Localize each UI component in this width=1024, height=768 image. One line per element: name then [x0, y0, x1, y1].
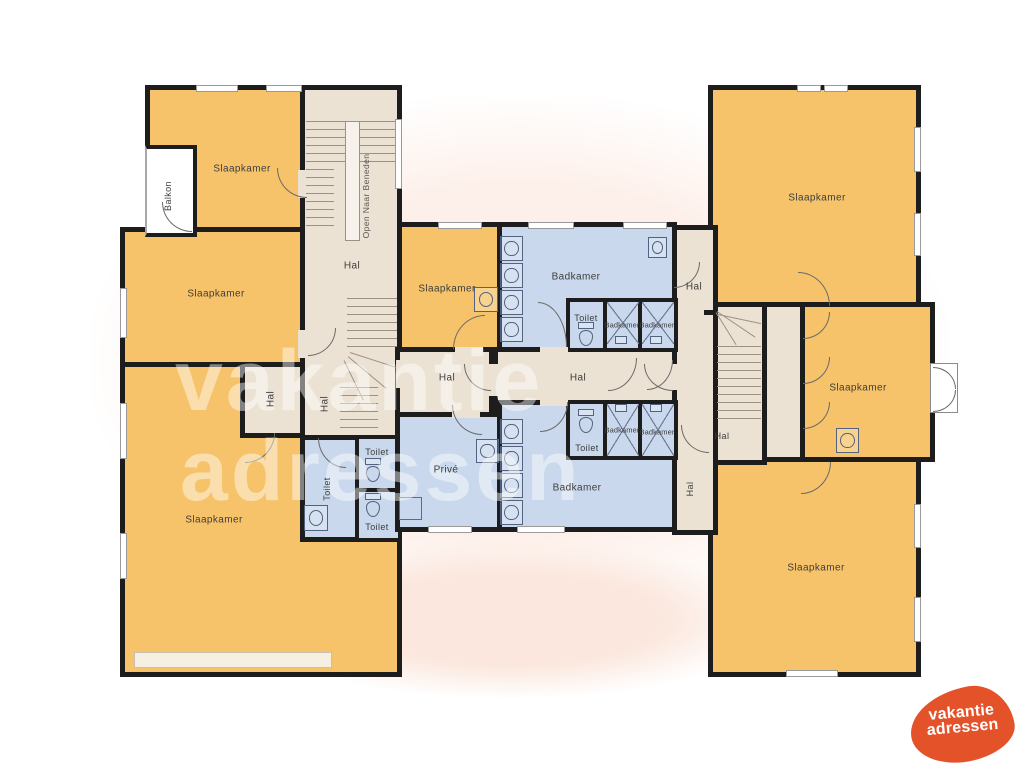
shower-head-icon	[650, 336, 662, 344]
stairs-open-well	[345, 121, 360, 241]
label-toilet-left: Toilet	[322, 477, 332, 500]
window	[528, 222, 574, 229]
window	[786, 670, 838, 677]
door-opening	[396, 360, 403, 388]
window	[438, 222, 482, 229]
sink-icon	[500, 446, 523, 471]
room-closet-strip	[762, 302, 805, 462]
window	[914, 213, 921, 256]
label-badkamer-top-shower-1: Badkamer	[605, 321, 640, 330]
shower-head-icon	[615, 404, 627, 412]
toilet-icon	[578, 322, 594, 346]
label-badkamer-top: Badkamer	[552, 272, 601, 283]
window	[428, 526, 472, 533]
shower-head-icon	[615, 336, 627, 344]
door-opening	[678, 308, 704, 316]
room-hal-corridor-right	[672, 310, 718, 535]
label-slaapkamer-top-right: Slaapkamer	[788, 193, 845, 204]
window	[623, 222, 667, 229]
window	[120, 288, 127, 338]
sink-icon	[500, 263, 523, 288]
label-slaapkamer-bottom-right: Slaapkamer	[787, 563, 844, 574]
door-opening	[540, 347, 568, 353]
sink-icon	[500, 473, 523, 498]
shower-head-icon	[650, 404, 662, 412]
label-hal-stairwell: Hal	[344, 261, 360, 272]
label-badkamer-bottom: Badkamer	[553, 483, 602, 494]
sink-icon	[476, 439, 499, 463]
sink-icon	[500, 317, 523, 342]
label-hal-right-stair: Hal	[715, 431, 730, 441]
stairs-left-mid	[347, 298, 397, 348]
label-hal-top-right: Hal	[686, 282, 702, 293]
wall-stub	[489, 396, 498, 412]
stairs-top-left-flight	[306, 169, 334, 233]
label-hal-center-west: Hal	[439, 373, 455, 384]
floorplan-canvas: vakantie adressen Slaapkamer Balkon Open…	[0, 0, 1024, 768]
label-toilet-left-bottom: Toilet	[365, 522, 388, 532]
storage-strip	[134, 652, 332, 668]
label-balkon: Balkon	[163, 181, 173, 211]
label-slaapkamer-middle: Slaapkamer	[418, 284, 475, 295]
window	[196, 85, 238, 92]
label-slaapkamer-left: Slaapkamer	[187, 289, 244, 300]
sink-icon	[500, 290, 523, 315]
label-badkamer-bottom-shower-2: Badkamer	[640, 428, 675, 437]
label-badkamer-bottom-shower-1: Badkamer	[605, 426, 640, 435]
window	[517, 526, 565, 533]
label-hal-center-east: Hal	[570, 373, 586, 384]
sink-icon	[304, 505, 328, 531]
sink-icon	[648, 237, 667, 258]
vakantieadressen-logo: vakantie adressen	[910, 688, 1014, 762]
window	[824, 85, 848, 92]
sink-icon	[500, 500, 523, 525]
label-open-naar-beneden: Open Naar Beneden	[361, 154, 371, 239]
label-hal-left-upper: Hal	[266, 391, 277, 407]
toilet-icon	[578, 409, 594, 433]
sink-icon	[500, 419, 523, 444]
wall-stub	[489, 349, 498, 364]
toilet-icon	[365, 493, 381, 517]
label-slaapkamer-top-left: Slaapkamer	[213, 164, 270, 175]
label-prive: Privé	[434, 465, 459, 476]
window	[797, 85, 821, 92]
label-hal-left-lower: Hal	[320, 396, 331, 412]
label-toilet-left-top: Toilet	[365, 447, 388, 457]
stairs-right-treads	[717, 346, 761, 426]
window	[395, 119, 402, 189]
door-opening	[298, 330, 306, 358]
toilet-icon	[365, 458, 381, 482]
window	[266, 85, 302, 92]
label-slaapkamer-bottom-left: Slaapkamer	[185, 515, 242, 526]
window	[120, 403, 127, 459]
window	[914, 597, 921, 642]
label-slaapkamer-mid-right: Slaapkamer	[829, 383, 886, 394]
label-badkamer-top-shower-2: Badkamer	[640, 321, 675, 330]
cabinet-icon	[399, 497, 422, 520]
sink-icon	[836, 428, 859, 453]
window	[914, 127, 921, 172]
window	[120, 533, 127, 579]
window	[914, 504, 921, 548]
label-toilet-bottom-center: Toilet	[575, 443, 598, 453]
label-hal-corridor: Hal	[685, 482, 695, 497]
sink-icon	[474, 287, 498, 312]
sink-icon	[500, 236, 523, 261]
label-toilet-top-center: Toilet	[574, 313, 597, 323]
